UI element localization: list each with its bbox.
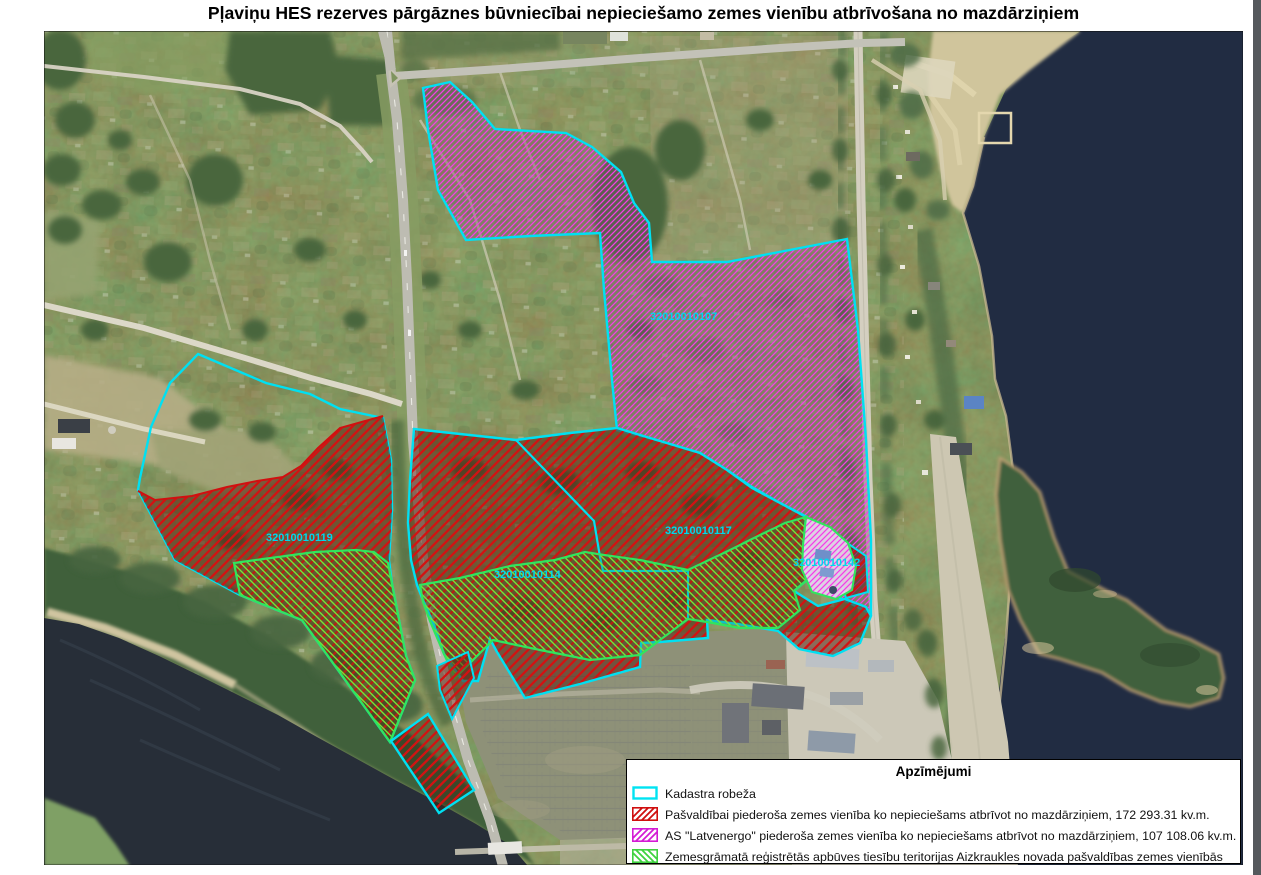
- svg-text:32010010142: 32010010142: [793, 557, 860, 569]
- svg-text:32010010114: 32010010114: [494, 569, 562, 581]
- svg-text:32010010119: 32010010119: [266, 532, 333, 544]
- svg-text:32010010107: 32010010107: [650, 311, 717, 323]
- svg-text:32010010117: 32010010117: [665, 525, 732, 537]
